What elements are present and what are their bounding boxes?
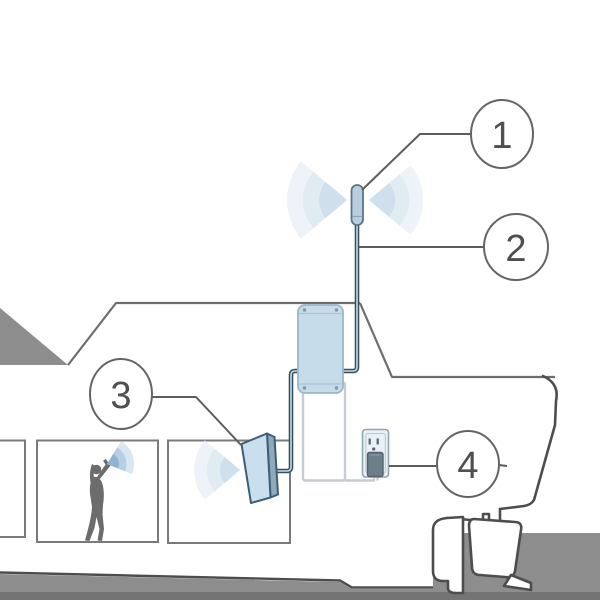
power-plug-icon <box>368 453 384 477</box>
outside-antenna-icon <box>352 185 364 225</box>
booster-screw <box>303 386 306 389</box>
callout-4: 4 <box>437 431 499 497</box>
callout-2: 2 <box>484 214 548 280</box>
callout-3-label: 3 <box>110 375 131 417</box>
ground-dark-band <box>0 592 600 600</box>
booster-unit-icon <box>298 305 343 393</box>
booster-screw <box>303 308 306 311</box>
diagram-canvas: 1 2 3 4 <box>0 0 600 600</box>
callout-1-label: 1 <box>491 115 512 157</box>
outlet-ground-hole <box>372 447 375 450</box>
motor-block <box>469 519 521 577</box>
booster-screw <box>335 308 338 311</box>
window-1 <box>0 441 25 538</box>
outlet-slot <box>377 439 379 445</box>
callout-1: 1 <box>471 100 533 168</box>
callout-3: 3 <box>90 359 152 429</box>
callout-4-label: 4 <box>457 445 478 487</box>
callout-2-label: 2 <box>505 228 526 270</box>
booster-screw <box>335 386 338 389</box>
outlet-slot <box>369 439 371 445</box>
leader-line-4-tick <box>499 465 507 466</box>
